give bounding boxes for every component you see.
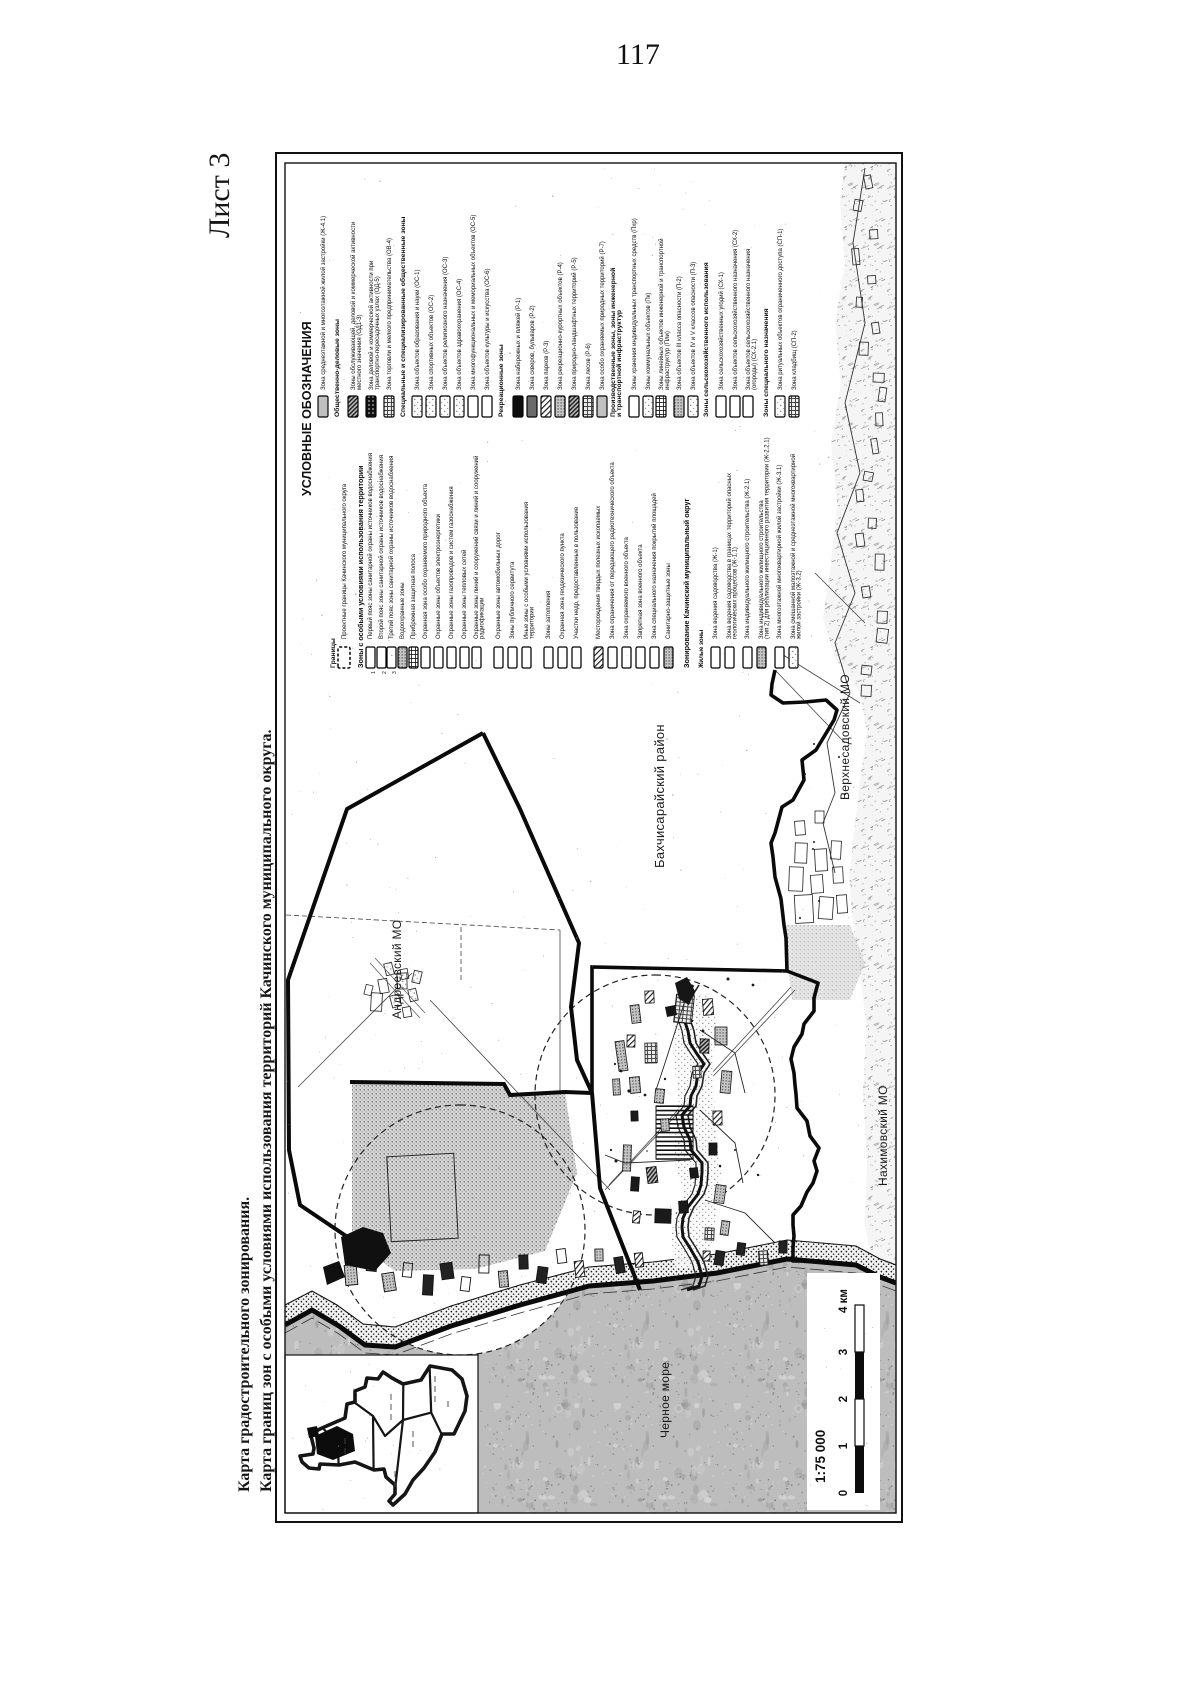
svg-text:инфраструктур (Пли): инфраструктур (Пли)	[665, 331, 671, 390]
svg-text:Бахчисарайский район: Бахчисарайский район	[652, 724, 667, 868]
svg-text:Зона охраняемого военного объе: Зона охраняемого военного объекта	[624, 537, 630, 639]
svg-text:Зона индивидуального жилищного: Зона индивидуального жилищного строитель…	[745, 479, 751, 639]
svg-text:Прибрежная защитная полоса: Прибрежная защитная полоса	[411, 553, 417, 639]
svg-text:Нахимовский МО: Нахимовский МО	[876, 1085, 890, 1186]
svg-text:Зона скверов, бульваров (Р-2): Зона скверов, бульваров (Р-2)	[530, 305, 536, 390]
svg-text:Зоны с особыми условиями испол: Зоны с особыми условиями использования т…	[356, 465, 365, 668]
svg-text:Андреевский МО: Андреевский МО	[390, 920, 404, 1019]
svg-text:Зона спортивных объектов (ОС-2: Зона спортивных объектов (ОС-2)	[429, 295, 435, 390]
svg-text:Зона ведения садоводства (Ж-1): Зона ведения садоводства (Ж-1)	[713, 547, 719, 639]
svg-text:Зона ритуальных объектов огран: Зона ритуальных объектов ограниченного д…	[778, 229, 784, 390]
svg-text:Первый пояс зоны санитарной ох: Первый пояс зоны санитарной охраны источ…	[367, 453, 374, 639]
svg-text:Зона объектов III класса опасн: Зона объектов III класса опасности (П-2)	[677, 276, 683, 390]
svg-text:Зоны коммунальных объектов (Пк: Зоны коммунальных объектов (Пк)	[646, 293, 652, 390]
svg-text:Зона кладбищ (СП-2): Зона кладбищ (СП-2)	[792, 330, 798, 390]
svg-text:Охранные зоны газопроводов и с: Охранные зоны газопроводов и систем газо…	[449, 486, 455, 639]
svg-text:Рекреационные зоны: Рекреационные зоны	[498, 344, 505, 417]
svg-text:2: 2	[838, 1396, 850, 1402]
svg-text:Общественно-деловые зоны: Общественно-деловые зоны	[333, 319, 341, 417]
svg-text:Зона многофункциональных и мем: Зона многофункциональных и мемориальных …	[471, 215, 477, 390]
svg-text:Зона лесов (Р-6): Зона лесов (Р-6)	[586, 343, 592, 390]
svg-text:(огороды) (СХ-2.1): (огороды) (СХ-2.1)	[752, 339, 758, 390]
svg-text:1: 1	[838, 1442, 850, 1449]
svg-text:Зона природно-ландшафтных терр: Зона природно-ландшафтных территорий (Р-…	[571, 257, 578, 390]
svg-text:Зонирование Качинский муниципа: Зонирование Качинский муниципальный окру…	[682, 499, 691, 668]
svg-text:Охранная зона особо охраняемог: Охранная зона особо охраняемого природно…	[423, 483, 429, 639]
svg-text:геологических процессов (Ж-1.1: геологических процессов (Ж-1.1)	[732, 547, 738, 639]
svg-text:Зона торговли и мелкого предпр: Зона торговли и мелкого предпринимательс…	[387, 238, 393, 390]
svg-text:Жилые зоны: Жилые зоны	[699, 630, 705, 669]
svg-text:Третий пояс зоны санитарной ох: Третий пояс зоны санитарной охраны источ…	[388, 456, 395, 639]
svg-text:(тип 2) для реализации инвести: (тип 2) для реализации инвестиционного р…	[764, 437, 770, 639]
svg-text:территории: территории	[529, 607, 535, 639]
svg-text:Зоны затопления: Зоны затопления	[546, 591, 552, 639]
svg-text:Зона сельскохозяйственных угод: Зона сельскохозяйственных угодий (СХ-1)	[718, 272, 725, 390]
svg-text:Границы: Границы	[330, 638, 337, 668]
svg-text:радиофикации: радиофикации	[479, 598, 485, 639]
svg-text:Охранная зона геодезического п: Охранная зона геодезического пункта	[560, 533, 566, 639]
svg-text:транспортно-пересадочных узлах: транспортно-пересадочных узлах (ОД-5)	[375, 276, 381, 390]
svg-text:Второй пояс зоны санитарной ох: Второй пояс зоны санитарной охраны источ…	[378, 455, 385, 639]
svg-text:2: 2	[382, 671, 388, 674]
svg-text:Зона объектов культуры и искус: Зона объектов культуры и искусства (ОС-6…	[485, 269, 491, 391]
svg-text:жилой застройки (Ж-3.2): жилой застройки (Ж-3.2)	[795, 570, 802, 639]
svg-text:Зоны сельскохозяйственного исп: Зоны сельскохозяйственного использования	[702, 262, 710, 417]
svg-text:0: 0	[838, 1490, 850, 1496]
svg-text:Зона набережных и пляжей (Р-1): Зона набережных и пляжей (Р-1)	[515, 298, 522, 390]
svg-text:Зона рекреационно-курортных об: Зона рекреационно-курортных объектов (Р-…	[558, 262, 564, 390]
svg-text:местного значения (ОД1-3): местного значения (ОД1-3)	[357, 314, 363, 390]
svg-text:Проектные границы Качинского м: Проектные границы Качинского муниципальн…	[342, 483, 348, 639]
svg-text:Запретная зона военного объект: Запретная зона военного объекта	[638, 544, 644, 639]
svg-text:Месторождения твердых полезных: Месторождения твердых полезных ископаемы…	[596, 506, 602, 639]
svg-text:и транспортной инфраструктур: и транспортной инфраструктур	[615, 310, 623, 417]
svg-text:Зоны хранения индивидуальных т: Зоны хранения индивидуальных транспортны…	[632, 218, 638, 390]
svg-text:Зона объектов IV и V классов о: Зона объектов IV и V классов опасности (…	[691, 262, 697, 390]
svg-text:Специальные и специализированн: Специальные и специализированные обществ…	[399, 216, 407, 417]
svg-text:УСЛОВНЫЕ ОБОЗНАЧЕНИЯ: УСЛОВНЫЕ ОБОЗНАЧЕНИЯ	[300, 321, 314, 496]
svg-text:Санитарно-защитные зоны: Санитарно-защитные зоны	[666, 563, 672, 639]
svg-text:Охранные зоны объектов электро: Охранные зоны объектов электроэнергетики	[436, 514, 442, 639]
svg-text:Охранные зоны тепловых сетей: Охранные зоны тепловых сетей	[461, 550, 468, 639]
svg-text:Зона ограничения от передающег: Зона ограничения от передающего радиотех…	[610, 462, 616, 639]
svg-text:1:75 000: 1:75 000	[813, 1430, 828, 1483]
svg-text:Зона объектов сельскохозяйстве: Зона объектов сельскохозяйственного назн…	[732, 230, 739, 390]
svg-text:4 км: 4 км	[838, 1289, 850, 1313]
svg-text:Охранные зоны автомобильных до: Охранные зоны автомобильных дорог	[496, 531, 502, 639]
svg-text:1: 1	[371, 671, 377, 674]
svg-text:Зона специального назначения п: Зона специального назначения покрытий пл…	[651, 493, 658, 639]
svg-text:Зона многоэтажной многоквартир: Зона многоэтажной многоквартирной жилой …	[776, 465, 783, 639]
svg-text:Черное море: Черное море	[658, 1362, 672, 1438]
svg-text:Участки недр, предоставленные: Участки недр, предоставленные в пользова…	[574, 506, 580, 639]
svg-text:Зона объектов здравоохранения: Зона объектов здравоохранения (ОС-4)	[457, 279, 463, 390]
svg-text:Водоохранные зоны: Водоохранные зоны	[400, 582, 406, 639]
svg-text:Зоны публичного сервитута: Зоны публичного сервитута	[510, 561, 516, 639]
svg-text:Зона среднеэтажной и многоэтаж: Зона среднеэтажной и многоэтажной жилой …	[320, 216, 327, 390]
svg-text:Зоны специального назначения: Зоны специального назначения	[763, 308, 770, 417]
svg-text:3: 3	[838, 1349, 850, 1355]
svg-text:Верхнесадовский МО: Верхнесадовский МО	[838, 674, 852, 800]
svg-text:Зона объектов образования и на: Зона объектов образования и науки (ОС-1)	[415, 269, 421, 390]
svg-text:Зона объектов религиозного наз: Зона объектов религиозного назначения (О…	[443, 257, 449, 390]
svg-text:Зона парков (Р-3): Зона парков (Р-3)	[544, 341, 550, 390]
svg-text:Зона особо охраняемых природны: Зона особо охраняемых природных территор…	[599, 241, 606, 390]
svg-text:3: 3	[392, 671, 398, 674]
